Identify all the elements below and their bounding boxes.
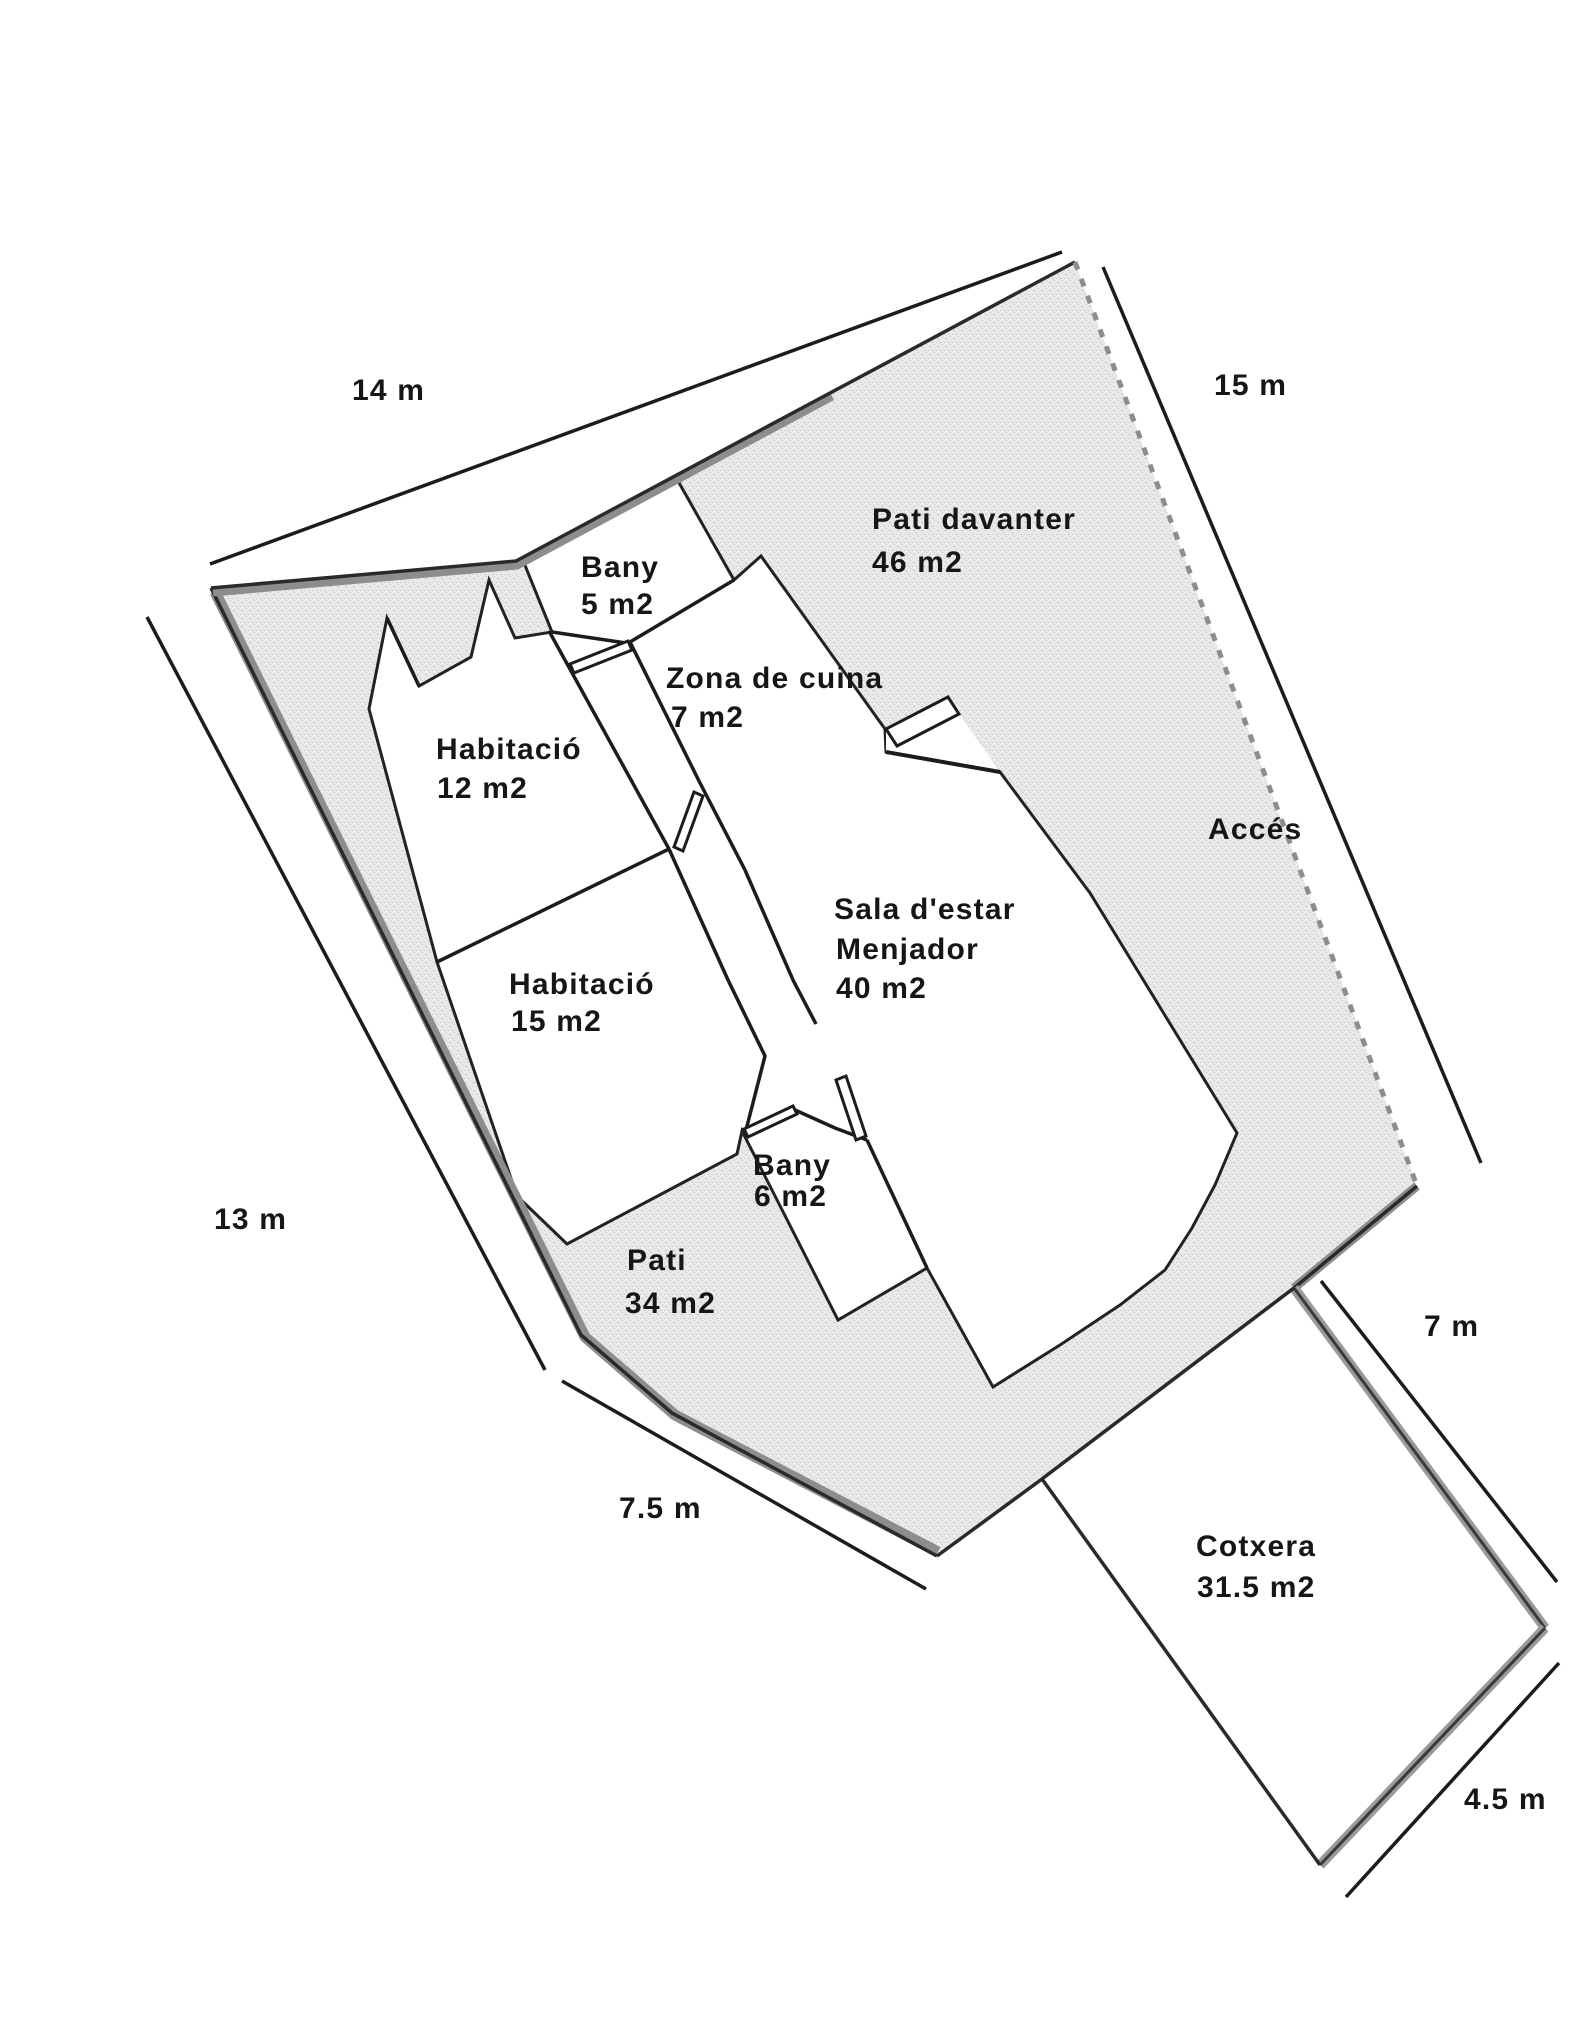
svg-text:Accés: Accés <box>1208 813 1302 846</box>
svg-text:7 m: 7 m <box>1424 1310 1479 1343</box>
svg-text:15 m: 15 m <box>1214 369 1287 402</box>
svg-text:13 m: 13 m <box>214 1203 287 1236</box>
svg-text:Bany: Bany <box>753 1149 831 1182</box>
svg-text:15 m2: 15 m2 <box>511 1005 602 1038</box>
svg-text:7 m2: 7 m2 <box>671 701 744 734</box>
svg-text:31.5 m2: 31.5 m2 <box>1197 1571 1315 1604</box>
svg-text:Cotxera: Cotxera <box>1196 1530 1316 1563</box>
svg-text:40 m2: 40 m2 <box>836 972 927 1005</box>
svg-text:34 m2: 34 m2 <box>625 1287 716 1320</box>
svg-text:14 m: 14 m <box>352 374 425 407</box>
svg-text:12 m2: 12 m2 <box>437 772 528 805</box>
svg-text:Sala d'estar: Sala d'estar <box>834 893 1016 926</box>
svg-text:5 m2: 5 m2 <box>581 588 654 621</box>
svg-text:Pati: Pati <box>627 1244 687 1277</box>
svg-text:46 m2: 46 m2 <box>872 546 963 579</box>
svg-text:Bany: Bany <box>581 551 659 584</box>
svg-text:Zona de cuina: Zona de cuina <box>666 662 883 695</box>
svg-text:Habitació: Habitació <box>509 968 655 1001</box>
svg-text:Habitació: Habitació <box>436 733 582 766</box>
svg-text:Pati davanter: Pati davanter <box>872 503 1076 536</box>
svg-text:6 m2: 6 m2 <box>754 1180 827 1213</box>
svg-text:7.5 m: 7.5 m <box>619 1492 702 1525</box>
svg-text:Menjador: Menjador <box>836 933 979 966</box>
svg-text:4.5 m: 4.5 m <box>1464 1783 1547 1816</box>
